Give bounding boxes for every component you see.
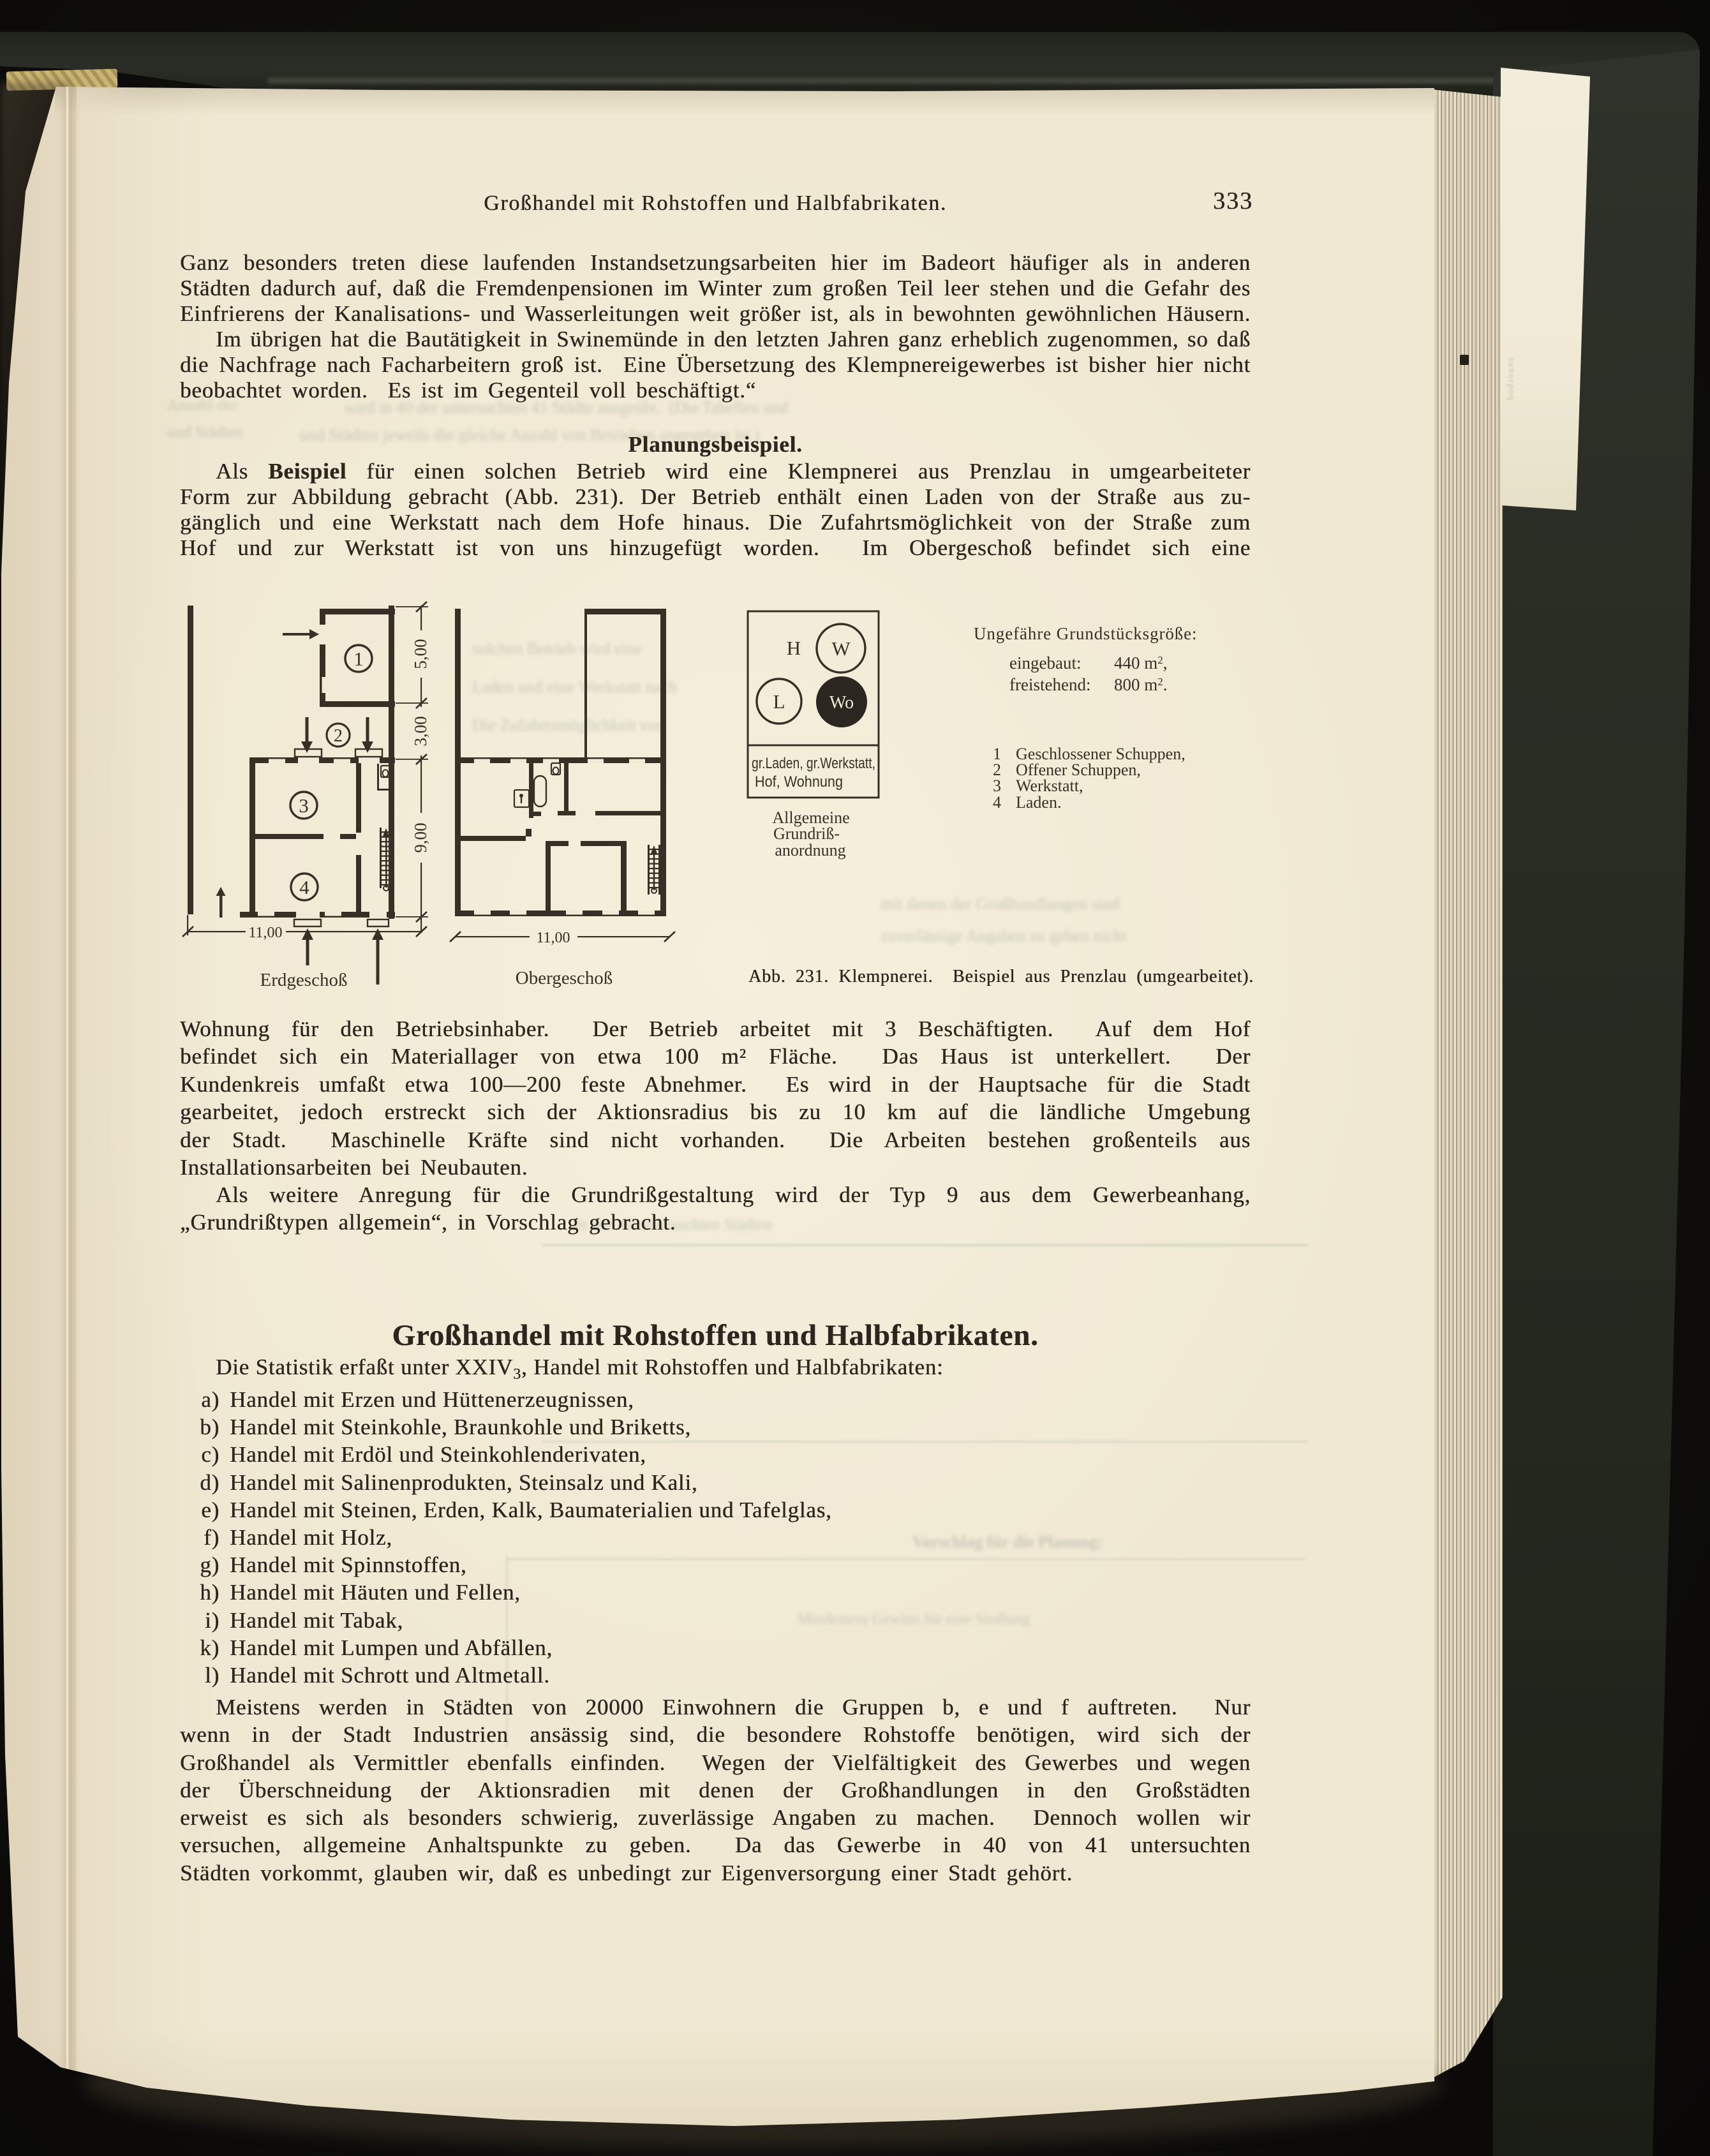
svg-text:H: H: [787, 637, 801, 659]
svg-text:440 m2,: 440 m2,: [1114, 653, 1168, 673]
svg-text:Wo: Wo: [829, 693, 854, 713]
svg-text:freistehend:: freistehend:: [1009, 675, 1090, 694]
svg-text:800 m2.: 800 m2.: [1114, 675, 1168, 694]
svg-text:Obergeschoß: Obergeschoß: [516, 968, 613, 988]
svg-text:Grundriß-: Grundriß-: [773, 824, 840, 843]
svg-text:Hof, Wohnung: Hof, Wohnung: [755, 773, 843, 791]
svg-text:gr.Laden, gr.Werkstatt,: gr.Laden, gr.Werkstatt,: [752, 755, 875, 772]
svg-text:eingebaut:: eingebaut:: [1009, 653, 1081, 673]
svg-text:5,00: 5,00: [411, 639, 430, 669]
svg-text:11,00: 11,00: [248, 925, 282, 941]
svg-text:11,00: 11,00: [536, 930, 570, 946]
svg-text:9,00: 9,00: [411, 822, 430, 852]
svg-text:Ungefähre Grundstücksgröße:: Ungefähre Grundstücksgröße:: [974, 624, 1197, 643]
svg-text:4Laden.: 4Laden.: [993, 793, 1061, 812]
svg-text:L: L: [773, 690, 785, 713]
svg-text:3Werkstatt,: 3Werkstatt,: [993, 777, 1083, 795]
svg-text:Erdgeschoß: Erdgeschoß: [260, 970, 348, 990]
svg-text:anordnung: anordnung: [775, 841, 845, 859]
svg-text:3,00: 3,00: [411, 716, 430, 746]
svg-text:W: W: [831, 637, 851, 660]
